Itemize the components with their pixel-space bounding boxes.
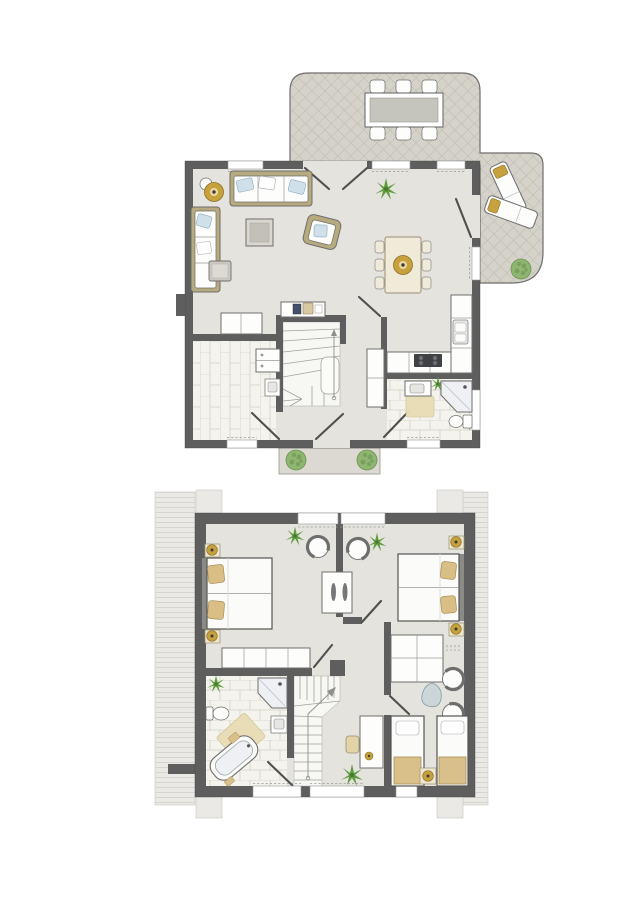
dining-chair [422, 241, 431, 253]
vanity-sink [405, 381, 431, 396]
dining-chair [422, 259, 431, 271]
nightstand-with-lamp [420, 768, 436, 784]
roof-tab-top-right [437, 490, 463, 516]
outdoor-chair [422, 127, 437, 140]
roof-tab-top-left [196, 490, 222, 516]
front-door-opening [313, 440, 350, 448]
roof-strip-left-hatch [155, 492, 195, 805]
terrace-french-door-opening [303, 161, 367, 169]
utility-sink [265, 379, 280, 396]
upper-chimney-stub [168, 764, 195, 774]
desk-chair [346, 736, 359, 753]
hall-closet [367, 349, 384, 407]
coffee-table [246, 219, 273, 246]
dining-chair [375, 259, 384, 271]
double-sided-cabinet [322, 572, 352, 613]
dining-chair [422, 277, 431, 289]
desk-paper [315, 305, 322, 313]
armchair [443, 669, 464, 690]
side-terrace-door-opening [472, 195, 480, 238]
toilet [206, 707, 229, 720]
nightstand-with-lamp [449, 623, 464, 636]
pouf-top [212, 264, 228, 278]
desk-books [293, 304, 301, 314]
stair-landing [321, 357, 339, 394]
bath-sink [271, 716, 287, 733]
outdoor-chair [370, 127, 385, 140]
entrance-porch [279, 448, 380, 474]
outdoor-chair [422, 80, 437, 93]
bath-rug [406, 396, 434, 417]
ground-staircase [283, 322, 340, 406]
floor-plan-drawing [0, 0, 640, 910]
kitchen-sink [453, 320, 468, 344]
desk [360, 716, 383, 768]
cooktop [414, 354, 442, 367]
floor-lamp [205, 183, 224, 202]
outdoor-chair [370, 80, 385, 93]
sideboard [221, 313, 262, 334]
floor-plan-page [0, 0, 640, 910]
dining-chair [375, 241, 384, 253]
double-bed [202, 558, 272, 629]
outdoor-chair [396, 127, 411, 140]
chimney-stub [176, 294, 185, 316]
nightstand-with-lamp [205, 630, 220, 643]
single-bed [391, 716, 424, 786]
porch-shrub [286, 450, 306, 470]
single-bed [437, 716, 468, 786]
terrace-shrub [511, 259, 531, 279]
nightstand-with-lamp [205, 544, 220, 557]
dining-chair [375, 277, 384, 289]
upper-floor-plan [155, 490, 488, 818]
desk [281, 302, 325, 317]
nightstand-with-lamp [449, 536, 464, 549]
dining-area [375, 237, 431, 293]
ground-floor-plan [176, 73, 543, 474]
desk-box [303, 303, 313, 314]
sofa-top [230, 171, 312, 206]
pendant-lamp [394, 256, 413, 275]
outdoor-chair [396, 80, 411, 93]
toilet [449, 415, 472, 428]
wardrobe [222, 648, 310, 668]
double-bed [398, 554, 464, 621]
outdoor-dining-set [365, 80, 443, 140]
washer-dryer [256, 349, 280, 372]
porch-shrub [357, 450, 377, 470]
outdoor-dining-table-top [370, 98, 438, 122]
